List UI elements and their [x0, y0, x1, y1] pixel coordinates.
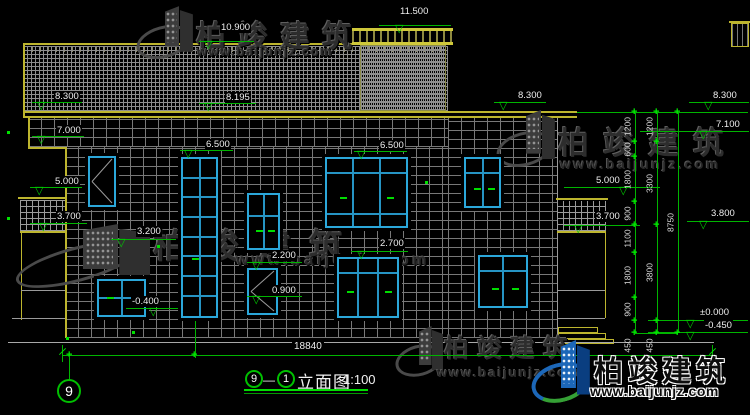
dim-segment-value: 8750: [667, 201, 676, 245]
window-handle: [474, 188, 481, 190]
level-triangle-icon: ▽: [204, 41, 212, 50]
level-triangle-icon: ▽: [39, 223, 47, 232]
tower-face: [360, 45, 446, 111]
brand-logo-icon: [533, 340, 591, 402]
window-handle: [492, 288, 499, 290]
logo-tower-right: [577, 345, 590, 395]
level-value: 8.300: [54, 91, 80, 102]
survey-dot: [7, 131, 10, 134]
window-rail: [480, 270, 526, 272]
watermark-tower-left: [419, 326, 431, 365]
watermark-windows: [166, 12, 177, 42]
level-triangle-icon: ▽: [357, 251, 365, 260]
level-value: 2.200: [271, 250, 297, 261]
level-triangle-icon: ▽: [184, 150, 192, 159]
dim-cross-2: +: [191, 351, 197, 360]
window-rail: [249, 215, 278, 217]
watermark-tower-right: [180, 10, 193, 52]
logo-tower-left: [561, 340, 576, 388]
level-triangle-icon: ▽: [252, 296, 260, 305]
level-triangle-icon: ▽: [252, 262, 260, 271]
title-dash: —: [263, 373, 275, 387]
watermark-tower-right: [432, 330, 443, 370]
window-rail: [327, 172, 406, 174]
window-handle: [256, 230, 263, 232]
level-triangle-icon: ▽: [37, 136, 45, 145]
level-line: [648, 332, 748, 333]
watermark-tower-right: [542, 114, 555, 159]
window-mullion: [502, 257, 504, 306]
logo-windows: [562, 347, 573, 383]
window: [247, 193, 280, 250]
window-handle: [107, 297, 114, 299]
title-axis-left-bubble: 9: [245, 370, 263, 388]
window-rail: [183, 295, 216, 297]
survey-dot: [157, 245, 160, 248]
drawing-scale: 1:100: [343, 372, 376, 387]
right-balcony-outer-edge: [605, 233, 606, 318]
window-mullion: [357, 259, 359, 316]
level-value: 3.800: [710, 208, 736, 219]
right-balcony-rail-bottom: [558, 318, 605, 319]
watermark-tower-left: [165, 6, 180, 47]
level-triangle-icon: ▽: [699, 221, 707, 230]
survey-dot: [425, 181, 428, 184]
title-axis-right-bubble: 1: [277, 370, 295, 388]
level-value: 3.200: [136, 226, 162, 237]
window-rail: [183, 196, 216, 198]
level-value: 3.700: [595, 211, 621, 222]
window-rail: [183, 255, 216, 257]
window-rail: [183, 236, 216, 238]
axis-leader-line: [69, 356, 70, 380]
level-value: 10.900: [220, 22, 251, 33]
window: [181, 157, 218, 318]
level-triangle-icon: ▽: [574, 225, 582, 234]
ground-line: [8, 342, 714, 343]
level-line: [687, 221, 749, 222]
level-line: [648, 320, 748, 321]
dim-segment-value: 3800: [646, 251, 655, 295]
dim-ext-left: [62, 345, 63, 362]
window-rail: [339, 272, 397, 274]
elevation-drawing-canvas: 柏竣建筑www.baijunjz.com柏竣建筑www.baijunjz.com…: [0, 0, 750, 415]
wall-left-edge-upper: [28, 118, 30, 148]
level-triangle-icon: ▽: [395, 25, 403, 34]
watermark-tower-left: [83, 224, 118, 269]
window-mullion: [352, 159, 354, 226]
window: [478, 255, 528, 308]
watermark-logo-icon: [138, 6, 194, 58]
level-triangle-icon: ▽: [357, 151, 365, 160]
dim-chain-line: [678, 112, 679, 333]
dim-segment-value: 1200: [646, 105, 655, 149]
level-triangle-icon: ▽: [686, 320, 694, 329]
right-balcony-roof-slab: [556, 198, 608, 200]
watermark-logo-icon: [498, 110, 556, 166]
level-value: 8.195: [225, 92, 251, 103]
dim-tick: +: [674, 108, 680, 117]
left-balcony-roof-slab: [18, 197, 66, 199]
window-rail: [183, 177, 216, 179]
roof-eave-band: [23, 111, 577, 118]
level-value: 0.900: [271, 285, 297, 296]
level-value: 7.100: [715, 119, 741, 130]
overall-dim-text: 18840: [292, 341, 324, 352]
level-value: 7.000: [56, 125, 82, 136]
survey-dot: [7, 217, 10, 220]
left-balcony-rail-top: [21, 290, 65, 291]
level-line: [689, 102, 749, 103]
level-triangle-icon: ▽: [704, 102, 712, 111]
casement-swing-icon: [90, 158, 114, 205]
level-value: -0.450: [704, 320, 733, 331]
window: [464, 157, 501, 208]
left-balcony-rail-bottom: [12, 318, 65, 319]
level-value: 6.500: [205, 139, 231, 150]
window-mullion: [263, 195, 265, 248]
window-handle: [387, 197, 394, 199]
level-triangle-icon: ▽: [499, 102, 507, 111]
window-handle: [488, 188, 495, 190]
survey-dot: [66, 337, 69, 340]
window-handle: [340, 197, 347, 199]
level-value: 2.700: [379, 238, 405, 249]
window: [337, 257, 399, 318]
window-rail: [466, 172, 499, 174]
brand-url: www.baijunjz.com: [590, 383, 719, 399]
level-triangle-icon: ▽: [35, 187, 43, 196]
level-triangle-icon: ▽: [117, 239, 125, 248]
level-triangle-icon: ▽: [204, 103, 212, 112]
level-value: -0.400: [131, 296, 160, 307]
level-value: 5.000: [595, 175, 621, 186]
dim-tick: +: [674, 329, 680, 338]
level-line-8300-right: [577, 112, 748, 113]
level-triangle-icon: ▽: [686, 332, 694, 341]
level-triangle-icon: ▽: [699, 131, 707, 140]
window: [325, 157, 408, 228]
window-handle: [512, 288, 519, 290]
watermark-url-text: www.baijunjz.com: [197, 44, 333, 59]
level-line: [379, 25, 451, 26]
survey-dot: [132, 331, 135, 334]
watermark-tower-left: [526, 110, 541, 154]
window-mullion: [482, 159, 484, 206]
level-value: 8.300: [712, 90, 738, 101]
window: [88, 156, 116, 207]
title-underline-2: [244, 393, 368, 394]
dim-tick: +: [653, 221, 659, 230]
roof-left-edge: [23, 43, 25, 118]
window-rail: [183, 275, 216, 277]
window-handle: [268, 230, 275, 232]
window-mullion: [379, 159, 381, 226]
window-handle: [192, 258, 199, 260]
level-value: 11.500: [399, 6, 429, 17]
level-value: 8.300: [517, 90, 543, 101]
window-mullion: [377, 259, 379, 316]
window-handle: [385, 291, 392, 293]
chimney: [731, 23, 749, 47]
level-value: 5.000: [54, 176, 80, 187]
watermark-windows: [86, 231, 112, 265]
window-rail: [183, 216, 216, 218]
level-value: 6.500: [379, 140, 405, 151]
level-value: 3.700: [56, 211, 82, 222]
level-triangle-icon: ▽: [37, 102, 45, 111]
right-balcony-rail-top: [558, 290, 605, 291]
dim-segment-value: 3300: [646, 162, 655, 206]
watermark-url-text: www.baijunjz.com: [560, 156, 721, 172]
window-handle: [347, 291, 354, 293]
watermark-windows: [527, 117, 538, 150]
axis-bubble: 9: [57, 379, 81, 403]
window-rail: [327, 213, 406, 215]
level-triangle-icon: ▽: [149, 308, 157, 317]
title-underline-1: [244, 389, 368, 391]
watermark-windows: [420, 332, 429, 361]
wall-step-line: [28, 147, 66, 149]
level-value: ±0.000: [699, 307, 730, 318]
